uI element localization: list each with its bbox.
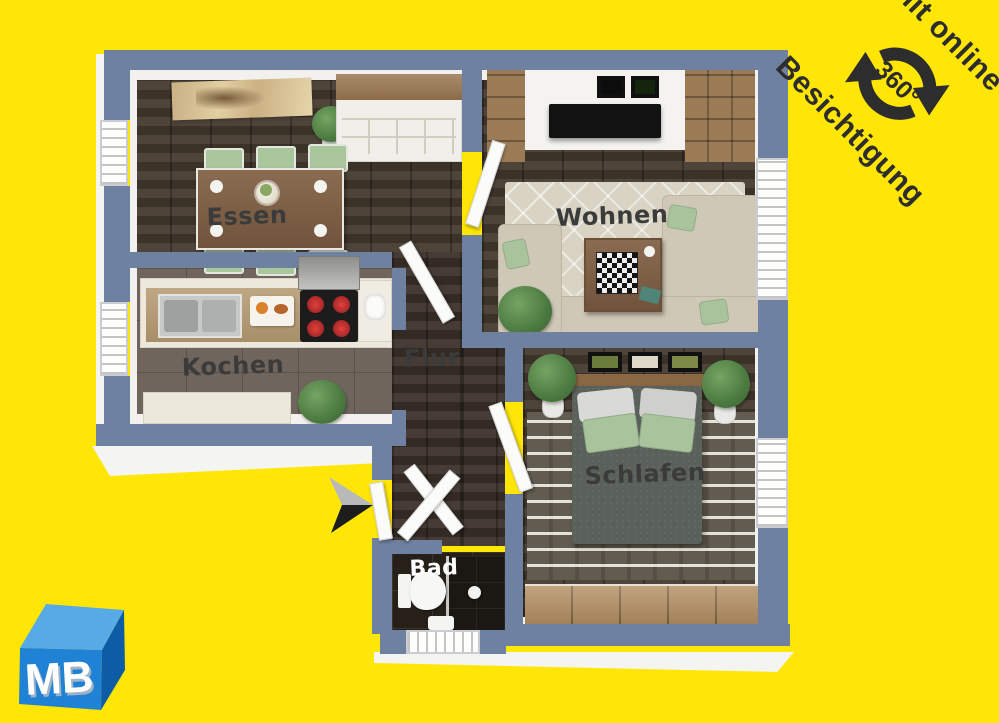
kitchen-sink-basin: [202, 300, 236, 332]
wall: [505, 494, 523, 632]
wall: [96, 424, 394, 446]
wall: [758, 300, 788, 438]
outer-rim-kitchen-bottom: [92, 446, 392, 476]
picture: [635, 80, 655, 94]
chess-board: [596, 252, 638, 294]
wardrobe: [525, 584, 762, 624]
picture-frame: [628, 352, 662, 372]
wall: [392, 268, 406, 330]
picture-frame: [631, 76, 659, 98]
window: [100, 302, 128, 376]
picture: [672, 356, 698, 368]
room-label-kochen: Kochen: [172, 350, 295, 382]
stove-burner: [307, 320, 324, 337]
sideboard-top: [336, 74, 462, 100]
plant-icon: [298, 380, 346, 424]
sideboard-drawers: [342, 118, 456, 154]
bath-sink: [428, 616, 454, 630]
food-items: [274, 304, 288, 314]
wall: [392, 410, 406, 446]
room-label-flur: Flur: [388, 342, 477, 373]
stove-burner: [333, 320, 350, 337]
wall: [104, 186, 130, 302]
wall: [118, 50, 776, 70]
bed-pillow: [638, 413, 696, 453]
room-label-schlafen: Schlafen: [578, 458, 713, 491]
tv: [549, 104, 661, 138]
room-flur-floor: [462, 348, 505, 546]
picture: [592, 356, 618, 368]
picture-frame: [588, 352, 622, 372]
kitchen-peninsula: [143, 392, 291, 424]
table-centerpiece-plant: [260, 184, 272, 196]
wall-art-detail: [196, 86, 266, 110]
food-items: [256, 302, 268, 314]
stove-burner: [307, 296, 324, 313]
wall: [480, 630, 506, 654]
plant-icon: [702, 360, 750, 408]
picture-frame: [597, 76, 625, 98]
plant-icon: [528, 354, 576, 402]
wall: [462, 332, 762, 348]
wall: [462, 70, 482, 152]
outer-rim-bottom: [374, 652, 794, 672]
window: [100, 120, 128, 186]
plate: [314, 224, 327, 237]
floor-plan-advert: Essen Wohnen Kochen Flur Schlafen Bad mi…: [0, 0, 999, 723]
wall: [505, 624, 790, 646]
picture-frame: [668, 352, 702, 372]
stove-burner: [333, 296, 350, 313]
kitchen-sink-basin: [164, 300, 198, 332]
range-hood: [298, 256, 360, 290]
window: [756, 158, 788, 300]
room-label-bad: Bad: [408, 555, 461, 582]
window: [406, 630, 480, 654]
cursor-arrow-icon: [326, 474, 376, 536]
small-sink: [364, 294, 386, 320]
shower-head: [468, 586, 481, 599]
wall: [380, 540, 442, 554]
plate: [314, 180, 327, 193]
mb-logo-text: MB: [24, 652, 95, 705]
decor-ball: [644, 246, 655, 257]
picture: [601, 80, 621, 94]
wall: [104, 50, 130, 120]
picture: [632, 356, 658, 368]
mb-logo: MB MB: [14, 596, 128, 718]
room-label-essen: Essen: [188, 200, 307, 232]
tv-shelf-right: [685, 70, 755, 162]
plant-icon: [498, 286, 552, 336]
wall: [462, 235, 482, 345]
wall: [505, 348, 523, 402]
room-label-wohnen: Wohnen: [548, 200, 677, 232]
sofa-pillow: [698, 298, 729, 326]
plate: [210, 180, 223, 193]
window: [756, 438, 788, 528]
